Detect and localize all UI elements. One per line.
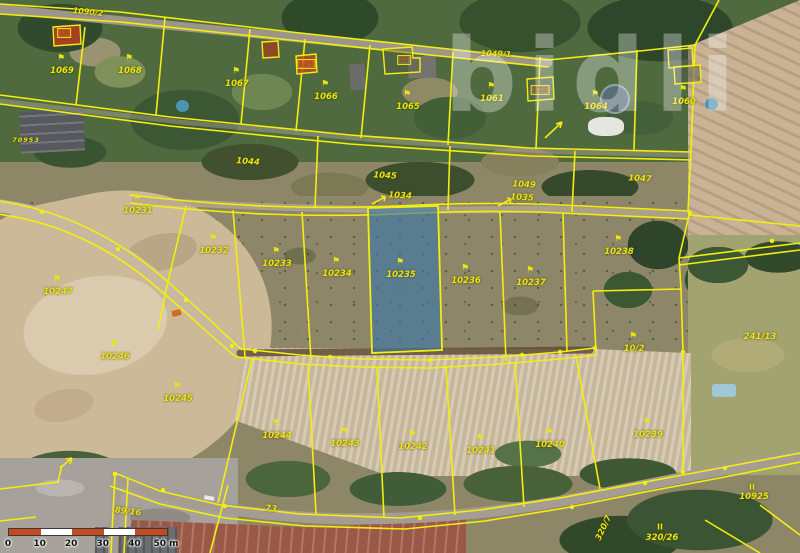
scale-bar-segment — [104, 529, 136, 535]
building-outlines — [53, 25, 701, 101]
scale-tick-3: 30 — [97, 539, 110, 549]
map-label-10234: 10234 — [322, 269, 352, 279]
map-label-10238: 10238 — [604, 247, 634, 257]
map-label-10247: 10247 — [43, 287, 73, 297]
scale-tick-4: 40 — [128, 539, 141, 549]
map-label-1044: 1044 — [236, 156, 260, 168]
scale-tick-5: 50 m — [153, 539, 178, 549]
map-label-II: II — [657, 523, 663, 532]
map-label-10232: 10232 — [199, 246, 229, 256]
map-label-1049: 1049 — [512, 179, 536, 190]
map-label-II: II — [749, 483, 755, 492]
map-label-10236: 10236 — [451, 276, 481, 286]
map-label-10925: 10925 — [739, 492, 769, 502]
map-label-125: 125 — [297, 59, 316, 69]
land-use-icon: ⚑ — [408, 431, 416, 440]
map-label-10242: 10242 — [398, 442, 428, 452]
scale-bar-segment — [72, 529, 104, 535]
map-label-10233: 10233 — [262, 259, 292, 269]
land-use-icon: ⚑ — [272, 420, 280, 429]
land-use-icon: ⚑ — [321, 81, 329, 90]
scale-tick-2: 20 — [65, 539, 78, 549]
map-label-1069: 1069 — [50, 66, 74, 76]
map-label-73: 73 — [265, 504, 278, 515]
map-label-22: 22 — [397, 55, 411, 65]
map-label-1049-1: 1049/1 — [480, 49, 511, 59]
land-use-icon: ⚑ — [396, 259, 404, 268]
map-label-10-2: 10/2 — [624, 344, 645, 354]
land-use-icon: ⚑ — [679, 86, 687, 95]
map-label-1068: 1068 — [118, 66, 142, 76]
land-use-icon: ⚑ — [403, 91, 411, 100]
land-use-icon: ⚑ — [110, 341, 118, 350]
map-label-10245: 10245 — [163, 394, 193, 404]
scale-tick-1: 10 — [33, 539, 46, 549]
scale-bar-segment — [9, 529, 41, 535]
map-label-1061: 1061 — [480, 94, 504, 104]
map-label-1034: 1034 — [388, 190, 412, 201]
land-use-icon: ⚑ — [57, 55, 65, 64]
land-use-icon: ⚑ — [629, 333, 637, 342]
map-label-1047: 1047 — [628, 173, 652, 184]
map-label-1064: 1064 — [584, 102, 608, 112]
map-label-241-13: 241/13 — [744, 332, 777, 342]
scale-bar-segment — [41, 529, 73, 535]
land-use-icon: ⚑ — [53, 276, 61, 285]
map-label-10241: 10241 — [466, 446, 496, 456]
map-label-1045: 1045 — [373, 170, 397, 181]
map-label-10246: 10246 — [100, 352, 130, 362]
map-label-10231: 10231 — [123, 206, 153, 216]
land-use-icon: ⚑ — [545, 429, 553, 438]
map-label-10244: 10244 — [262, 431, 292, 441]
land-use-icon: ⚑ — [332, 258, 340, 267]
map-label-70953: 70953 — [12, 136, 40, 144]
land-use-icon: ⚑ — [340, 428, 348, 437]
land-use-icon: ⚑ — [461, 265, 469, 274]
map-label-10243: 10243 — [330, 439, 360, 449]
land-use-icon: ⚑ — [133, 195, 141, 204]
scale-tick-0: 0 — [5, 539, 11, 549]
land-use-icon: ⚑ — [526, 267, 534, 276]
land-use-icon: ⚑ — [591, 91, 599, 100]
map-label-1060: 1060 — [672, 97, 696, 107]
land-use-icon: ⚑ — [272, 248, 280, 257]
map-label-10239: 10239 — [633, 430, 663, 440]
scale-bar-segment — [135, 529, 167, 535]
land-use-icon: ⚑ — [643, 419, 651, 428]
land-use-icon: ⚑ — [173, 383, 181, 392]
land-use-icon: ⚑ — [209, 235, 217, 244]
map-label-1065: 1065 — [396, 102, 420, 112]
map-label-1035: 1035 — [510, 192, 534, 203]
map-label-16: 16 — [57, 28, 71, 38]
map-label-10240: 10240 — [535, 440, 565, 450]
map-label-1067: 1067 — [225, 79, 249, 89]
map-label-10237: 10237 — [516, 278, 546, 288]
land-use-icon: ⚑ — [487, 83, 495, 92]
map-label-1066: 1066 — [314, 92, 338, 102]
scale-bar — [8, 528, 168, 536]
map-label-10235: 10235 — [386, 270, 416, 280]
cadastral-map[interactable]: bidli 1090/21049/11069⚑1068⚑1067⚑1066⚑10… — [0, 0, 800, 553]
land-use-icon: ⚑ — [476, 435, 484, 444]
land-use-icon: ⚑ — [232, 68, 240, 77]
map-label-320-26: 320/26 — [646, 533, 679, 543]
land-use-icon: ⚑ — [614, 236, 622, 245]
land-use-icon: ⚑ — [125, 55, 133, 64]
map-label-172: 172 — [531, 85, 550, 95]
